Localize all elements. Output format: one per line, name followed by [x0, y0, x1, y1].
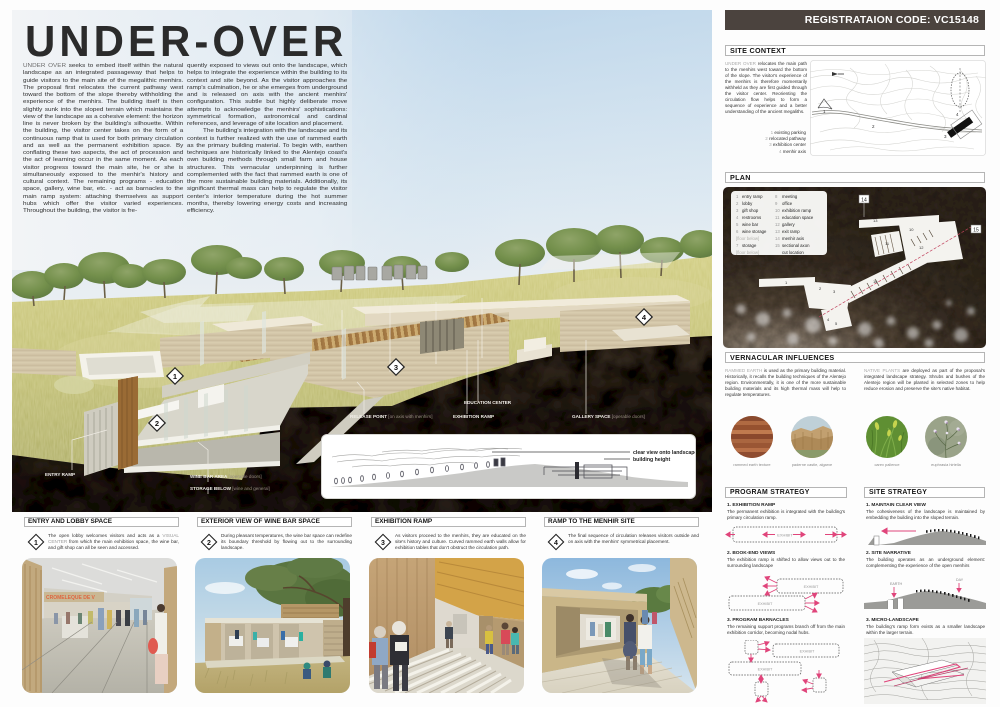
svg-text:wine storage: wine storage — [742, 229, 767, 234]
svg-text:14: 14 — [861, 198, 867, 204]
svg-text:exit ramp: exit ramp — [782, 229, 800, 234]
svg-text:DAY: DAY — [956, 578, 964, 582]
svg-text:1: 1 — [173, 372, 177, 381]
svg-text:15: 15 — [775, 243, 780, 248]
svg-text:sectional axon: sectional axon — [782, 243, 810, 248]
svg-text:lobby: lobby — [742, 201, 753, 206]
svg-text:[floor below]: [floor below] — [736, 250, 759, 255]
svg-text:12: 12 — [775, 222, 780, 227]
svg-text:2: 2 — [155, 419, 159, 428]
svg-text:storage: storage — [742, 243, 757, 248]
svg-text:3: 3 — [381, 540, 385, 547]
svg-text:menhir axis: menhir axis — [782, 236, 804, 241]
svg-text:15: 15 — [973, 228, 979, 234]
svg-text:gift shop: gift shop — [742, 208, 759, 213]
svg-text:13: 13 — [873, 218, 878, 223]
svg-text:EXHIBIT: EXHIBIT — [800, 650, 815, 654]
svg-text:16: 16 — [873, 279, 878, 284]
svg-text:exhibition ramp: exhibition ramp — [782, 208, 812, 213]
svg-text:3: 3 — [394, 363, 398, 372]
svg-text:2: 2 — [207, 540, 211, 547]
svg-text:EARTH: EARTH — [890, 582, 903, 586]
svg-text:office: office — [782, 201, 793, 206]
svg-text:CROMELEQUE DE V: CROMELEQUE DE V — [46, 595, 96, 601]
svg-text:gallery: gallery — [782, 222, 796, 227]
svg-text:14: 14 — [775, 236, 780, 241]
svg-text:meeting: meeting — [782, 194, 798, 199]
svg-text:EXHIBIT: EXHIBIT — [777, 533, 793, 538]
svg-text:building height: building height — [633, 457, 670, 463]
svg-text:13: 13 — [775, 229, 780, 234]
svg-text:[floor below]: [floor below] — [736, 236, 759, 241]
svg-text:EXHIBIT: EXHIBIT — [758, 602, 773, 606]
svg-text:cut location: cut location — [782, 250, 804, 255]
svg-text:clear view onto landscape: clear view onto landscape — [633, 450, 695, 456]
svg-text:4: 4 — [554, 540, 558, 547]
svg-text:12: 12 — [919, 245, 924, 250]
svg-text:10: 10 — [775, 208, 780, 213]
svg-text:11: 11 — [775, 215, 780, 220]
svg-text:EXHIBIT: EXHIBIT — [758, 668, 773, 672]
svg-text:EXHIBIT: EXHIBIT — [804, 585, 819, 589]
svg-text:wine bar: wine bar — [742, 222, 759, 227]
svg-text:education space: education space — [782, 215, 814, 220]
svg-text:entry ramp: entry ramp — [742, 194, 763, 199]
svg-text:10: 10 — [909, 227, 914, 232]
svg-text:1: 1 — [34, 540, 38, 547]
svg-text:restrooms: restrooms — [742, 215, 761, 220]
